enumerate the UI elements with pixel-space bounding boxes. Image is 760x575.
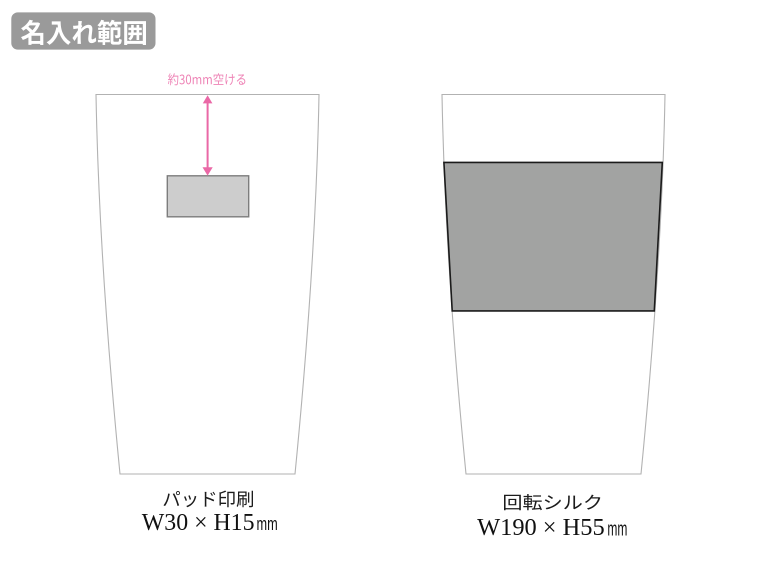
svg-text:mm: mm — [257, 514, 278, 535]
svg-text:W30 × H15: W30 × H15 — [142, 510, 255, 536]
svg-text:mm: mm — [607, 519, 627, 541]
svg-text:W190 × H55: W190 × H55 — [477, 514, 605, 541]
